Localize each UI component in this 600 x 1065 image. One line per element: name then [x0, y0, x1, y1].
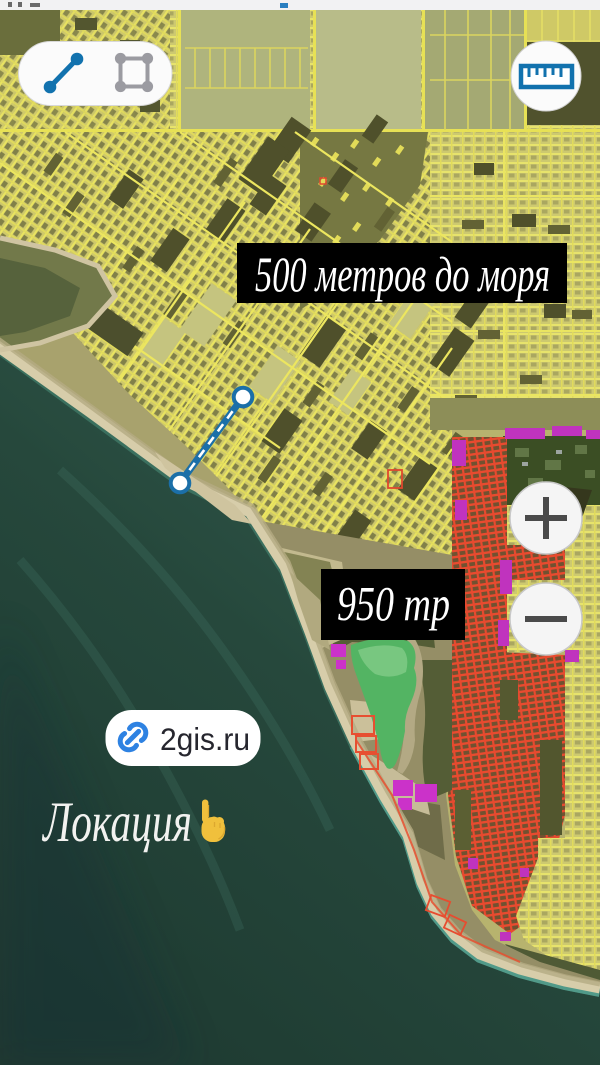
svg-text:500 метров до моря: 500 метров до моря [255, 246, 550, 302]
svg-text:Локация: Локация [42, 791, 192, 854]
svg-text:2gis.ru: 2gis.ru [160, 721, 250, 757]
svg-text:950 тр: 950 тр [337, 576, 450, 631]
